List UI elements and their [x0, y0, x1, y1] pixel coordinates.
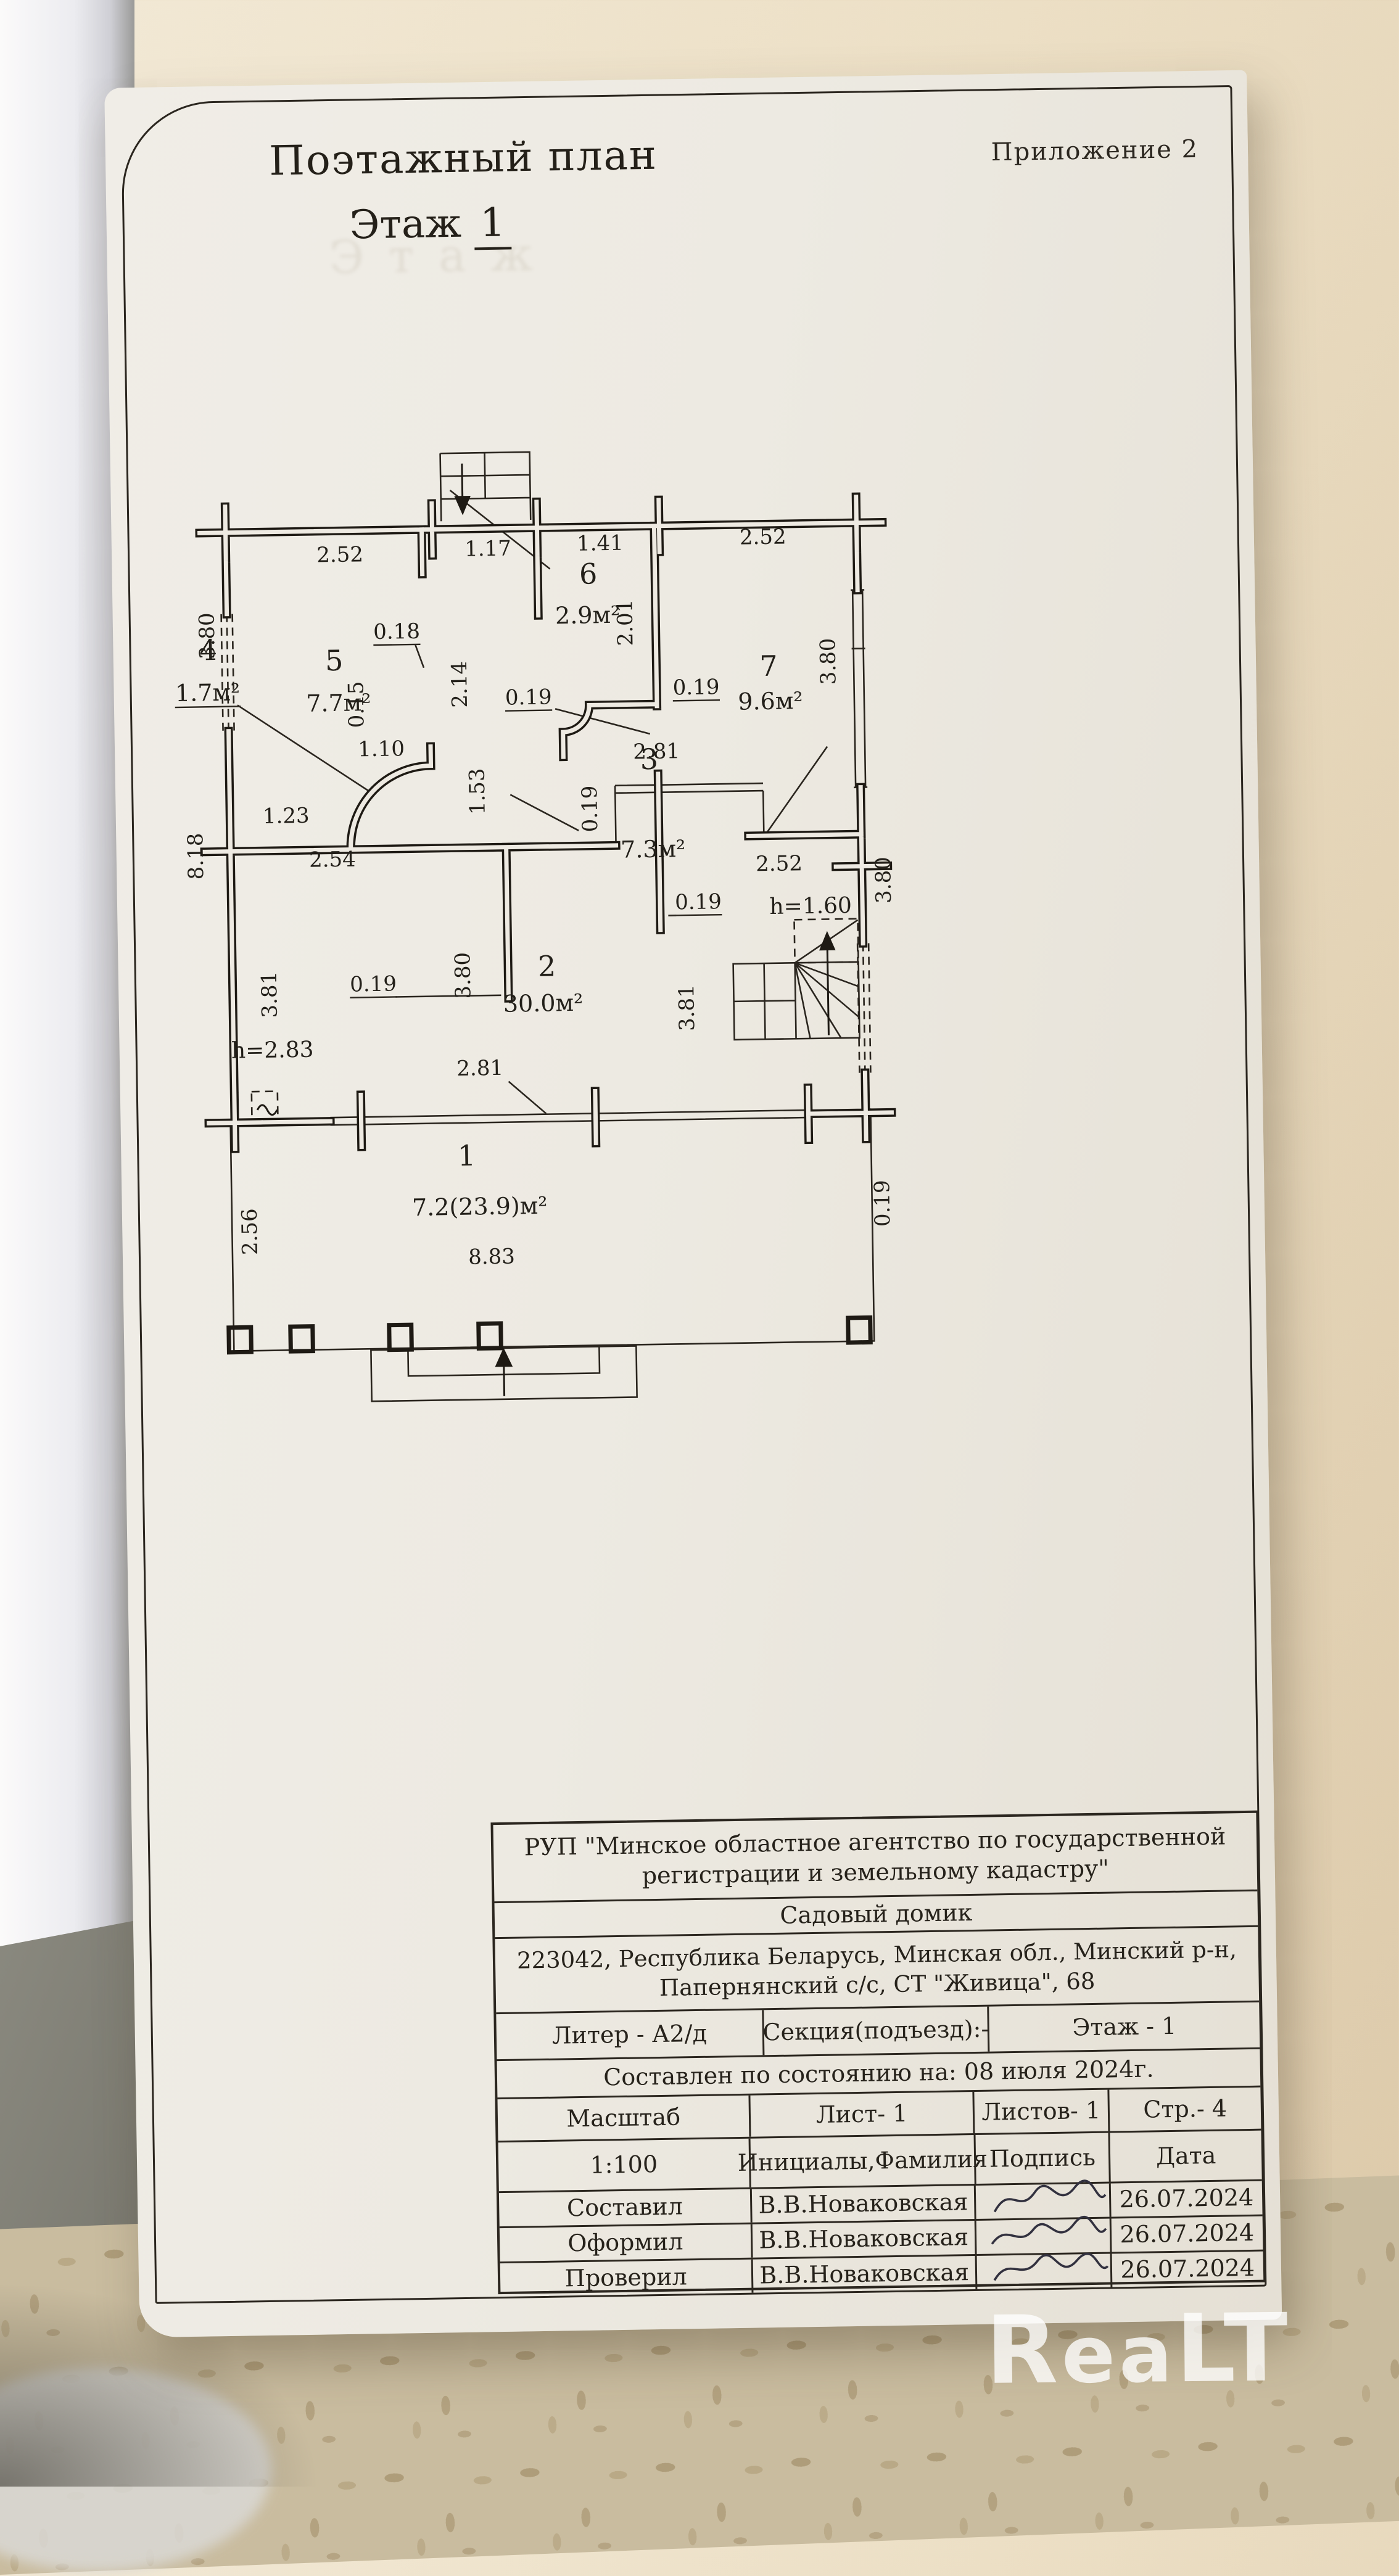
dimension-label: 2.9м² [555, 601, 621, 630]
dimension-label: 3.80 [450, 952, 476, 999]
page-number-cell: Стр.- 4 [1107, 2088, 1261, 2131]
photo-of-floor-plan-document: { "page": { "appendix": "Приложение 2", … [0, 0, 1399, 2487]
dimension-label: 7.3м² [621, 835, 686, 863]
dimension-label: 0.19 [350, 971, 397, 997]
liter-cell: Литер - А2/д [496, 2010, 762, 2059]
plan-dimension-labels: 2.521.171.412.523.808.183.812.563.803.80… [172, 523, 902, 1274]
name-cell: В.В.Новаковская [751, 2256, 975, 2293]
appliance-symbol [257, 1105, 277, 1116]
title-block-table: РУП "Минское областное агентство по госу… [490, 1811, 1266, 2294]
thin-lines [220, 447, 877, 1404]
floor-word: Этаж [349, 201, 462, 249]
label-underline [350, 997, 397, 997]
name-cell: В.В.Новаковская [750, 2186, 974, 2223]
dimension-label: 30.0м² [503, 989, 584, 1018]
dimension-label: 9.6м² [738, 687, 803, 715]
dimension-label: 3.80 [815, 638, 841, 685]
floor-plan-svg: 2.521.171.412.523.808.183.812.563.803.80… [153, 419, 915, 1411]
role-cell: Оформил [500, 2224, 751, 2261]
realt-watermark: ReaLT [985, 2292, 1393, 2405]
dimension-label: 3 [640, 743, 658, 776]
section-cell: Секция(подъезд):- [762, 2007, 988, 2055]
floor-number: 1 [474, 200, 512, 250]
dimension-label: 1.17 [464, 536, 511, 561]
floor-cell: Этаж - 1 [987, 2002, 1260, 2052]
label-underline [673, 700, 720, 701]
dimension-label: 1.41 [577, 531, 624, 556]
name-header-cell: Инициалы,Фамилия [749, 2135, 975, 2187]
agency-cell: РУП "Минское областное агентство по госу… [493, 1813, 1258, 1901]
appendix-label: Приложение 2 [991, 135, 1199, 167]
dimension-label: 0.19 [672, 675, 719, 700]
dimension-label: 1.23 [263, 804, 310, 829]
dimension-label: 7 [759, 649, 778, 683]
signature-cell [975, 2254, 1110, 2289]
date-cell: 26.07.2024 [1108, 2181, 1262, 2217]
label-underline [505, 710, 552, 710]
dimension-label: 3.81 [257, 971, 283, 1018]
dimension-label: 3.81 [674, 984, 699, 1031]
dimension-label: 7.2(23.9)м² [412, 1192, 548, 1221]
sheets-cell: Листов- 1 [972, 2090, 1108, 2133]
left-wall-dashed-window [221, 614, 234, 731]
dimension-label: h=2.83 [231, 1037, 314, 1064]
address-cell: 223042, Республика Беларусь, Минская обл… [495, 1925, 1259, 2012]
floor-plan-drawing: 2.521.171.412.523.808.183.812.563.803.80… [153, 419, 915, 1411]
dimension-label: 5 [325, 644, 344, 677]
label-underline [373, 644, 420, 645]
dimension-label: 2.52 [756, 851, 803, 876]
dimension-label: 2.56 [237, 1208, 263, 1255]
dimension-label: 0.19 [870, 1180, 895, 1227]
dimension-label: 2 [538, 949, 556, 982]
dimension-label: 3.80 [871, 857, 896, 903]
dimension-label: 2.52 [316, 542, 363, 567]
dimension-label: 2.14 [447, 661, 473, 708]
date-cell: 26.07.2024 [1109, 2216, 1263, 2252]
sheet-cell: Лист- 1 [749, 2092, 973, 2137]
dimension-label: 4 [199, 633, 217, 667]
dimension-label: 1 [457, 1138, 476, 1172]
label-underline [175, 706, 241, 707]
dimension-label: 0.19 [505, 685, 552, 710]
date-cell: 26.07.2024 [1110, 2252, 1263, 2287]
dimension-label: 0.18 [373, 619, 420, 644]
dimension-label: 1.53 [465, 768, 490, 815]
name-cell: В.В.Новаковская [751, 2221, 975, 2258]
role-cell: Составил [499, 2189, 751, 2226]
dimension-label: 0.19 [577, 785, 603, 832]
dimension-label: 2.81 [456, 1056, 503, 1081]
dimension-label: 8.18 [183, 833, 208, 879]
dimension-label: 0.19 [675, 889, 722, 915]
date-header-cell: Дата [1108, 2131, 1262, 2182]
dimension-label: 2.52 [740, 524, 786, 549]
label-underline [675, 915, 722, 915]
signature [983, 2246, 1113, 2297]
dimension-label: h=1.60 [769, 893, 852, 920]
dimension-label: 1.10 [358, 736, 405, 762]
scale-header: Масштаб [498, 2096, 749, 2141]
role-cell: Проверил [500, 2260, 752, 2297]
dimension-label: 6 [579, 557, 598, 590]
dimension-label: 1.7м² [175, 678, 241, 707]
dimension-label: 8.83 [468, 1245, 515, 1270]
scale-value-cell: 1:100 [498, 2139, 749, 2191]
dimension-label: 7.7м² [306, 689, 371, 717]
document-page: Этаж Приложение 2 Поэтажный план Этаж 1 [104, 70, 1282, 2338]
dimension-label: 2.54 [309, 847, 356, 872]
